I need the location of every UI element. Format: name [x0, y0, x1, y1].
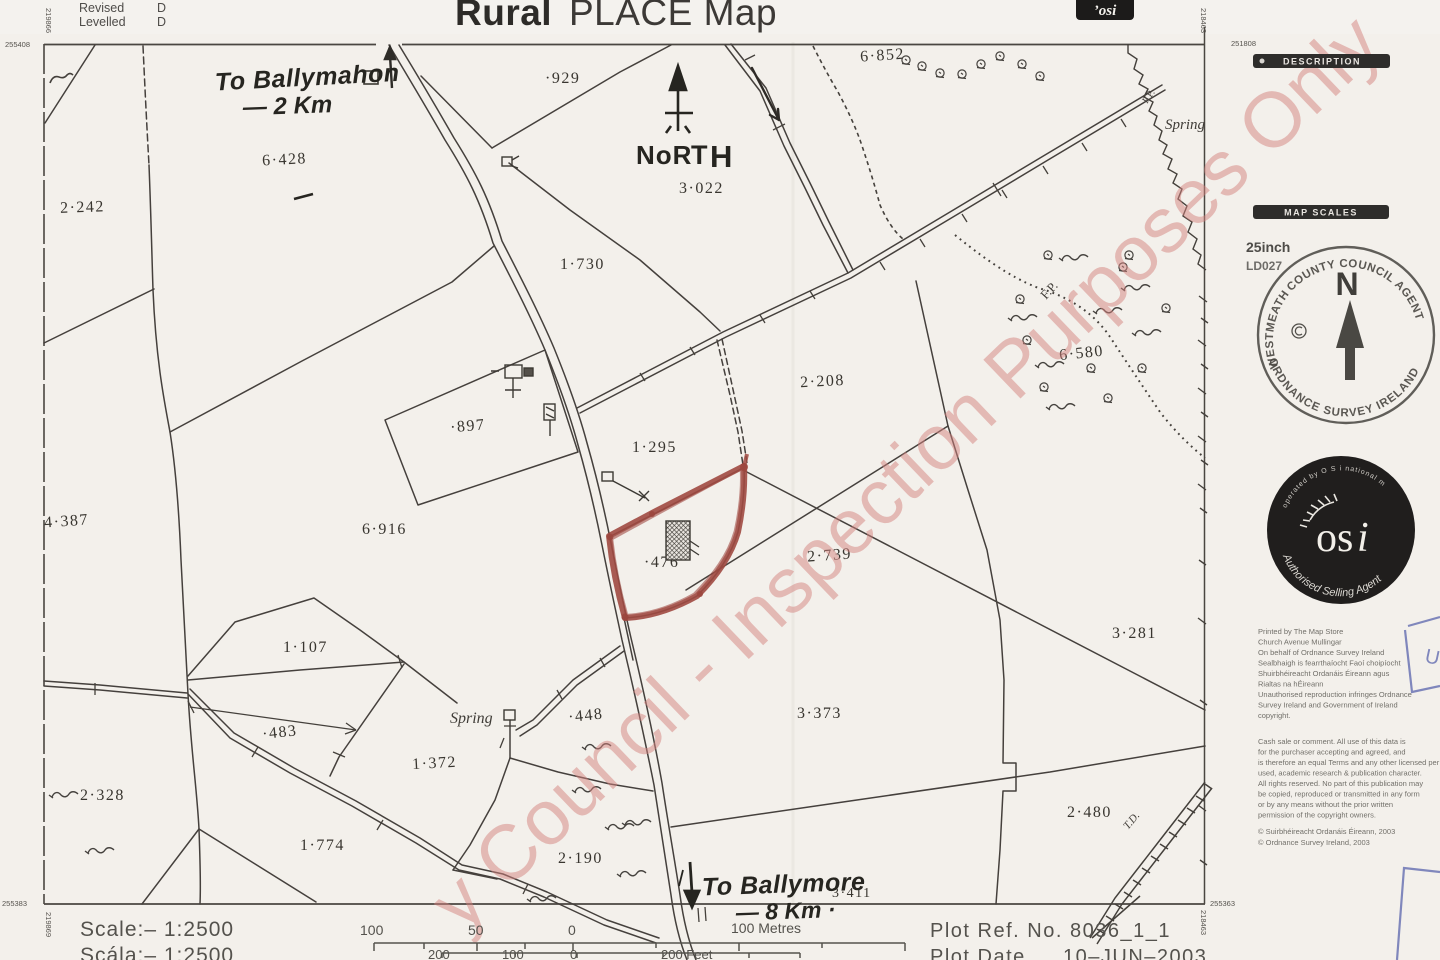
svg-text:© Ordnance Survey Ireland, 200: © Ordnance Survey Ireland, 2003	[1258, 838, 1370, 847]
svg-text:50: 50	[468, 922, 484, 938]
svg-text:Shuirbhéireacht Ordanáis Éirea: Shuirbhéireacht Ordanáis Éireann agus	[1258, 669, 1390, 678]
svg-text:3·022: 3·022	[679, 180, 724, 197]
svg-text:100: 100	[502, 947, 524, 960]
svg-text:Sealbhaigh is fearrthaíocht Fa: Sealbhaigh is fearrthaíocht Faoí choipío…	[1258, 659, 1402, 668]
svg-text:0: 0	[570, 947, 577, 960]
svg-text:6·916: 6·916	[362, 521, 407, 538]
svg-text:Scála:– 1:2500: Scála:– 1:2500	[80, 944, 234, 960]
svg-text:or by any means without the pr: or by any means without the prior writte…	[1258, 800, 1393, 809]
svg-text:On behalf of Ordnance Survey I: On behalf of Ordnance Survey Ireland	[1258, 648, 1384, 657]
svg-text:Rialtas na hÉireann: Rialtas na hÉireann	[1258, 680, 1323, 689]
svg-text:3·373: 3·373	[797, 705, 842, 722]
svg-text:copyright.: copyright.	[1258, 711, 1291, 720]
svg-text:is therefore an equal Terms an: is therefore an equal Terms and any othe…	[1258, 758, 1440, 767]
svg-text:os: os	[1316, 515, 1353, 561]
svg-text:219866: 219866	[44, 8, 53, 33]
svg-text:H: H	[710, 139, 732, 174]
svg-text:Spring: Spring	[450, 710, 493, 727]
svg-text:D: D	[157, 1, 166, 15]
svg-text:’osi: ’osi	[1094, 3, 1117, 19]
svg-text:for the purchaser accepting an: for the purchaser accepting and agreed, …	[1258, 748, 1406, 757]
svg-text:8036_1_1: 8036_1_1	[1070, 920, 1171, 942]
svg-text:2·242: 2·242	[60, 198, 105, 217]
svg-text:MAP SCALES: MAP SCALES	[1284, 208, 1358, 218]
svg-text:218463: 218463	[1199, 8, 1208, 33]
svg-text:25inch: 25inch	[1246, 239, 1290, 255]
svg-text:1·730: 1·730	[560, 256, 605, 273]
svg-text:permission of the copyright ow: permission of the copyright owners.	[1258, 811, 1376, 820]
svg-text:Church Avenue Mullingar: Church Avenue Mullingar	[1258, 638, 1342, 647]
svg-text:— 2 Km: — 2 Km	[241, 91, 332, 121]
svg-text:NoR: NoR	[636, 140, 692, 170]
svg-text:2·208: 2·208	[800, 372, 846, 391]
svg-text:1·295: 1·295	[632, 439, 677, 456]
svg-text:255408: 255408	[5, 40, 30, 49]
svg-text:used, academic research & publ: used, academic research & publication ch…	[1258, 769, 1422, 778]
svg-text:0: 0	[568, 922, 576, 938]
svg-text:T: T	[691, 140, 708, 170]
svg-text:Printed by The Map Store: Printed by The Map Store	[1258, 627, 1343, 636]
svg-text:Plot Date: Plot Date	[930, 946, 1026, 960]
svg-text:PLACE Map: PLACE Map	[569, 0, 777, 33]
svg-text:·929: ·929	[545, 70, 580, 87]
svg-text:100: 100	[360, 922, 384, 938]
svg-text:Unauthorised reproduction infr: Unauthorised reproduction infringes Ordn…	[1258, 690, 1412, 699]
svg-text:DESCRIPTION: DESCRIPTION	[1283, 57, 1361, 67]
svg-text:N: N	[1335, 266, 1358, 302]
svg-text:LD027: LD027	[1246, 259, 1282, 273]
svg-text:Levelled: Levelled	[79, 15, 126, 29]
svg-text:1·372: 1·372	[412, 754, 458, 773]
svg-text:i: i	[1357, 515, 1369, 561]
svg-text:To Ballymore: To Ballymore	[702, 868, 866, 902]
svg-text:200 Feet: 200 Feet	[661, 947, 713, 960]
svg-text:Cash sale or comment. All use: Cash sale or comment. All use of this da…	[1258, 737, 1406, 746]
svg-text:Scale:– 1:2500: Scale:– 1:2500	[80, 918, 234, 941]
svg-text:·897: ·897	[449, 416, 486, 436]
svg-text:251808: 251808	[1231, 39, 1256, 48]
svg-text:100 Metres: 100 Metres	[731, 920, 801, 936]
svg-text:1·107: 1·107	[283, 639, 328, 656]
svg-text:4·387: 4·387	[44, 511, 90, 531]
svg-text:Revised: Revised	[79, 1, 124, 15]
svg-text:218463: 218463	[1199, 910, 1208, 935]
svg-text:© Suirbhéireacht Ordanáis Éire: © Suirbhéireacht Ordanáis Éireann, 2003	[1258, 827, 1395, 836]
svg-text:2·328: 2·328	[80, 787, 125, 804]
svg-text:10–JUN–2003: 10–JUN–2003	[1063, 946, 1207, 960]
svg-text:219869: 219869	[44, 912, 53, 937]
svg-text:200: 200	[428, 947, 450, 960]
svg-text:All rights reserved. No part o: All rights reserved. No part of this pub…	[1258, 779, 1423, 788]
svg-text:D: D	[157, 15, 166, 29]
svg-text:Plot Ref. No.: Plot Ref. No.	[930, 920, 1063, 942]
svg-text:Survey Ireland and Government: Survey Ireland and Government of Ireland	[1258, 701, 1398, 710]
svg-text:255383: 255383	[2, 899, 27, 908]
svg-text:3·281: 3·281	[1112, 625, 1157, 642]
svg-text:1·774: 1·774	[300, 837, 345, 854]
svg-text:2·480: 2·480	[1067, 804, 1112, 821]
svg-text:255363: 255363	[1210, 899, 1235, 908]
svg-text:be copied, reproduced or trans: be copied, reproduced or transmitted in …	[1258, 790, 1420, 799]
svg-text:6·428: 6·428	[262, 150, 308, 169]
svg-text:Rural: Rural	[455, 0, 552, 33]
svg-text:6·852: 6·852	[860, 46, 906, 66]
